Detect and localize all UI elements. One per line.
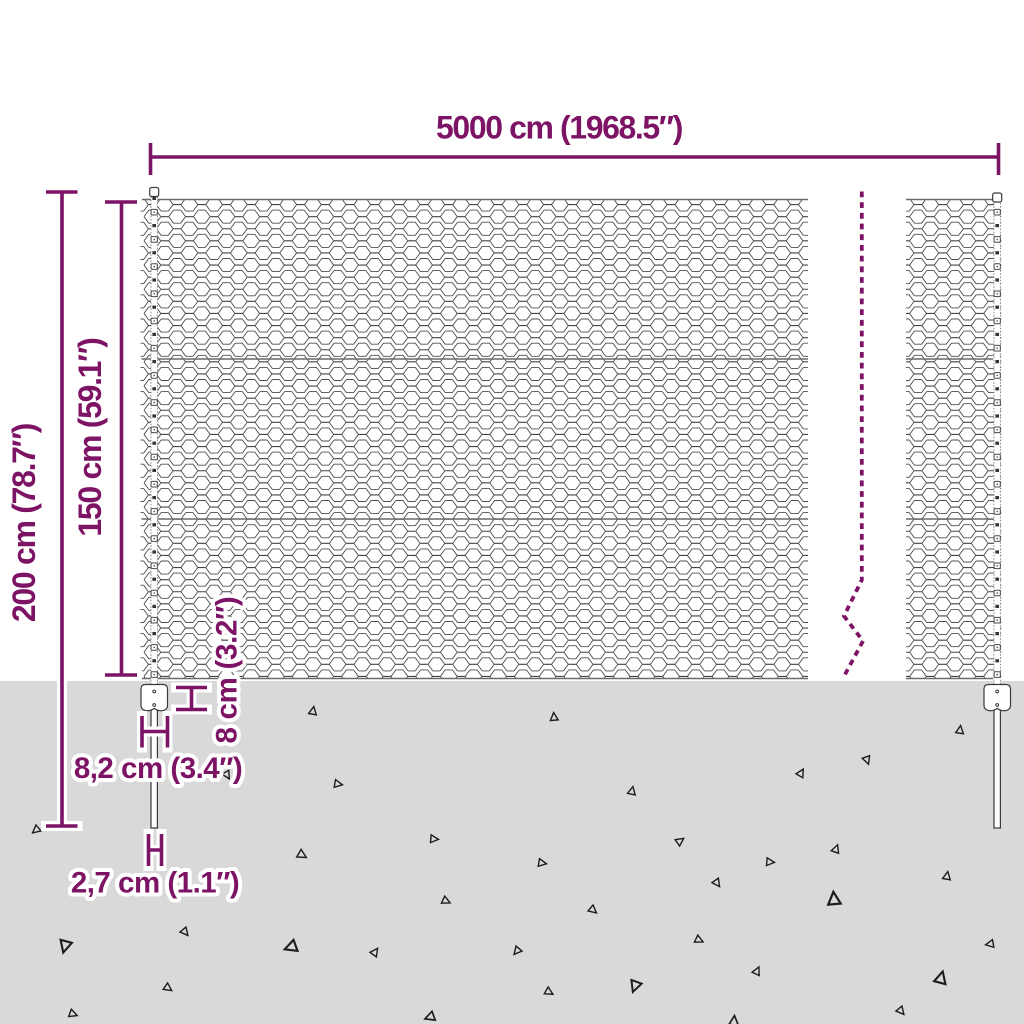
svg-text:8,2 cm (3.4″): 8,2 cm (3.4″) xyxy=(74,752,242,785)
svg-text:150 cm (59.1″): 150 cm (59.1″) xyxy=(72,338,108,537)
svg-text:5000 cm (1968.5″): 5000 cm (1968.5″) xyxy=(436,110,683,146)
svg-text:8 cm (3.2″): 8 cm (3.2″) xyxy=(211,597,244,744)
svg-text:200 cm (78.7″): 200 cm (78.7″) xyxy=(6,423,42,622)
svg-text:2,7 cm (1.1″): 2,7 cm (1.1″) xyxy=(71,867,239,900)
